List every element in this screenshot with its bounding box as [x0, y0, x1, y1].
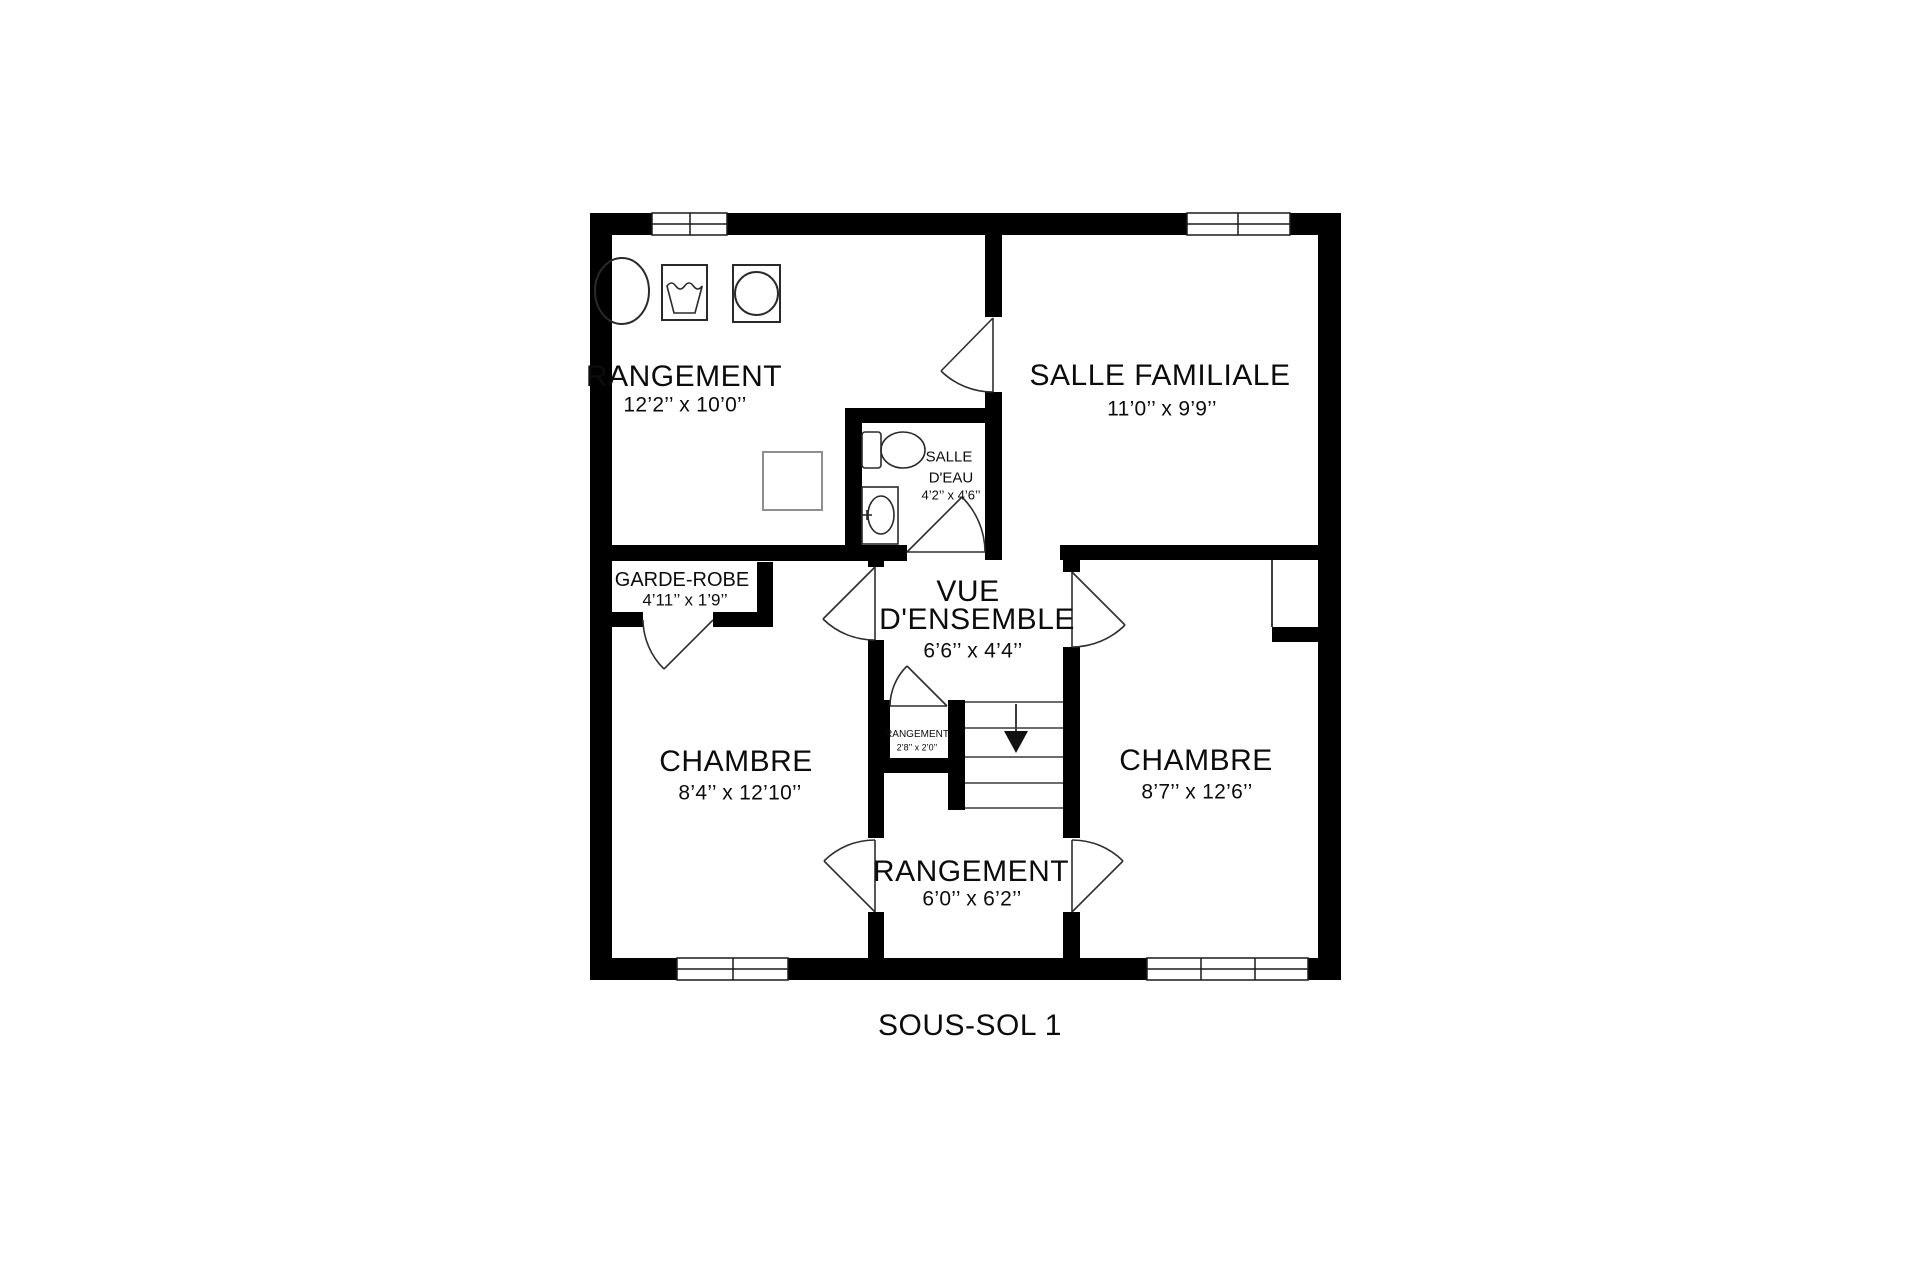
door-closet-hall	[890, 666, 947, 706]
wall-bath-top	[845, 408, 1002, 423]
wall-bath-left	[845, 423, 862, 560]
laundry-tub-icon	[662, 265, 707, 320]
room-label-chambre-left: CHAMBRE	[659, 747, 813, 777]
room-dims-salle-familiale: 11’0’’ x 9’9’’	[1107, 399, 1217, 420]
door-storage-bedroom2	[1072, 840, 1123, 912]
room-label-chambre-right: CHAMBRE	[1119, 746, 1273, 776]
wall-hallright-c	[1063, 912, 1080, 958]
wall-closet-bottom	[868, 758, 965, 773]
room-label-vue-densemble-line2: D'ENSEMBLE	[879, 605, 1075, 635]
wall-left	[590, 213, 612, 980]
room-dims-chambre-right: 8’7’’ x 12’6’’	[1141, 782, 1252, 803]
room-label-rangement-bottom: RANGEMENT	[873, 857, 1069, 887]
door-garde-robe	[643, 620, 713, 669]
wall-garderobe-bottom-left	[612, 612, 643, 627]
window-top-left	[652, 213, 727, 235]
room-dims-chambre-left: 8’4’’ x 12’10’’	[678, 783, 801, 804]
window-bottom-right	[1147, 958, 1308, 980]
window-bottom-left	[677, 958, 788, 980]
wall-divider-upper	[985, 235, 1002, 317]
toilet-icon	[862, 432, 925, 468]
wall-bedroom2-closet-bottom	[1272, 627, 1318, 642]
floorplan-page: RANGEMENT 12’2’’ x 10’0’’ SALLE FAMILIAL…	[0, 0, 1920, 1280]
furnace-icon	[763, 452, 822, 510]
room-label-rangement-closet: RANGEMENT	[885, 730, 949, 740]
room-dims-salle-eau: 4’2’’ x 4’6’’	[921, 489, 980, 502]
wall-right	[1318, 213, 1341, 980]
wall-hallright-a	[1063, 547, 1080, 572]
room-label-rangement-top: RANGEMENT	[586, 362, 782, 392]
room-label-salle-eau-line1: SALLE	[926, 450, 973, 465]
door-salle-deau	[907, 497, 985, 552]
staircase	[965, 702, 1063, 808]
room-label-garde-robe: GARDE-ROBE	[615, 570, 749, 590]
wall-central-c	[868, 912, 884, 958]
room-label-salle-familiale: SALLE FAMILIALE	[1030, 361, 1291, 391]
wall-famroom-bottom	[1060, 545, 1318, 560]
wall-laundry-bottom	[612, 545, 907, 561]
wall-central-b	[868, 640, 884, 838]
door-laundry-famroom	[941, 318, 993, 392]
room-dims-rangement-closet: 2’8’’ x 2’0’’	[897, 744, 938, 753]
wall-central-a	[868, 545, 884, 567]
dryer-icon	[733, 265, 780, 322]
room-dims-rangement-bottom: 6’0’’ x 6’2’’	[922, 889, 1021, 910]
wall-hallright-b	[1063, 647, 1080, 838]
window-top-right	[1187, 213, 1290, 235]
door-hall-bedroom2	[1072, 572, 1125, 647]
room-dims-garde-robe: 4’11’’ x 1’9’’	[642, 592, 727, 609]
door-hall-bedroom1	[823, 567, 875, 640]
floor-title: SOUS-SOL 1	[878, 1011, 1062, 1041]
door-storage-bedroom1	[824, 840, 875, 912]
wall-closet-right	[948, 700, 965, 810]
room-label-salle-eau-line2: D'EAU	[929, 471, 974, 486]
room-dims-rangement-top: 12’2’’ x 10’0’’	[623, 395, 746, 416]
room-dims-vue-densemble: 6’6’’ x 4’4’’	[923, 641, 1022, 662]
sink-icon	[862, 487, 898, 544]
wall-garderobe-bottom-right	[713, 612, 773, 627]
